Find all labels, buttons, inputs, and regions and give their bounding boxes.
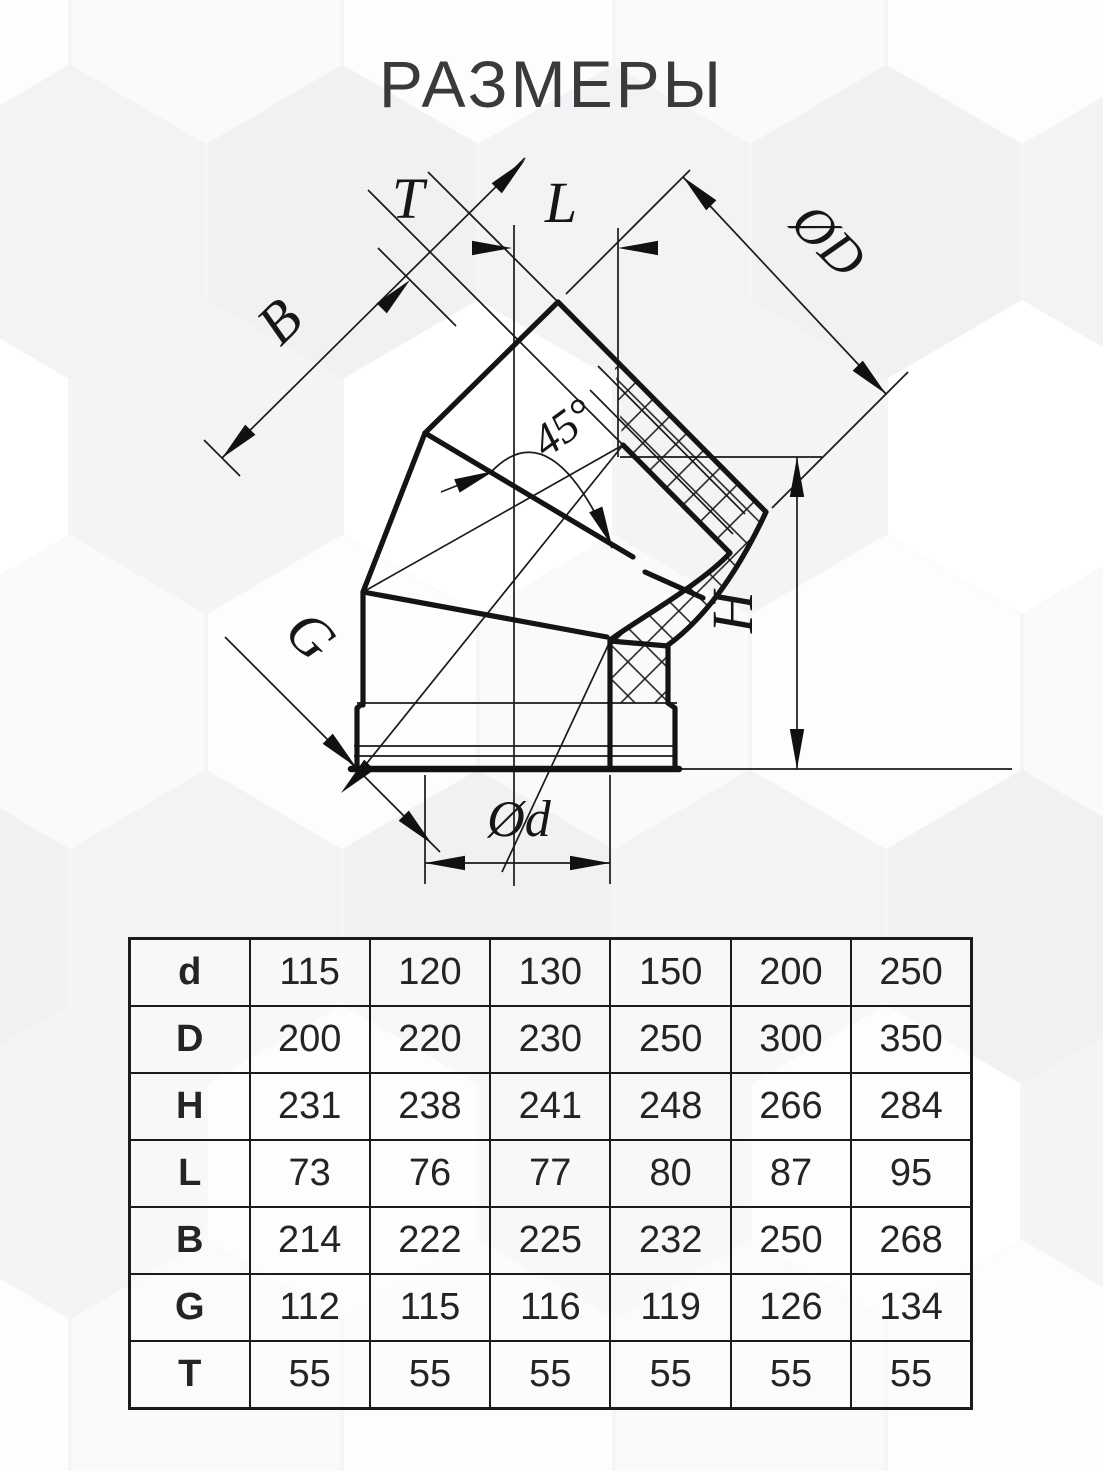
dimension-arrowhead — [377, 275, 415, 313]
table-row: d115120130150200250 — [130, 939, 972, 1007]
dimension-arrowhead — [678, 172, 716, 210]
dimensions-table-body: d115120130150200250D200220230250300350H2… — [130, 939, 972, 1409]
page-title: РАЗМЕРЫ — [0, 46, 1103, 122]
dim-label-t: T — [392, 166, 428, 231]
param-cell: T — [130, 1341, 250, 1409]
dim-label-g: G — [273, 597, 349, 673]
dim-label-h: H — [700, 588, 765, 634]
value-cell: 55 — [610, 1341, 730, 1409]
table-row: G112115116119126134 — [130, 1274, 972, 1341]
dimension-arrowhead — [853, 361, 891, 399]
table-row: H231238241248266284 — [130, 1073, 972, 1140]
value-cell: 250 — [731, 1207, 851, 1274]
dimension-arrowhead — [790, 729, 804, 769]
dimension-arrowhead — [399, 811, 437, 849]
dimension-arrowhead — [454, 464, 496, 492]
value-cell: 55 — [851, 1341, 971, 1409]
dimension-arrowhead — [492, 155, 530, 193]
value-cell: 300 — [731, 1006, 851, 1073]
value-cell: 220 — [370, 1006, 490, 1073]
value-cell: 130 — [490, 939, 610, 1007]
value-cell: 200 — [731, 939, 851, 1007]
value-cell: 268 — [851, 1207, 971, 1274]
dimensions-table: d115120130150200250D200220230250300350H2… — [128, 937, 973, 1410]
value-cell: 116 — [490, 1274, 610, 1341]
param-cell: L — [130, 1140, 250, 1207]
param-cell: d — [130, 939, 250, 1007]
value-cell: 55 — [250, 1341, 370, 1409]
value-cell: 77 — [490, 1140, 610, 1207]
value-cell: 119 — [610, 1274, 730, 1341]
param-cell: B — [130, 1207, 250, 1274]
value-cell: 134 — [851, 1274, 971, 1341]
value-cell: 80 — [610, 1140, 730, 1207]
value-cell: 150 — [610, 939, 730, 1007]
dimension-arrowhead — [472, 241, 512, 255]
value-cell: 76 — [370, 1140, 490, 1207]
param-cell: D — [130, 1006, 250, 1073]
value-cell: 222 — [370, 1207, 490, 1274]
value-cell: 248 — [610, 1073, 730, 1140]
value-cell: 284 — [851, 1073, 971, 1140]
table-row: B214222225232250268 — [130, 1207, 972, 1274]
param-cell: G — [130, 1274, 250, 1341]
dim-label-b: B — [244, 286, 315, 357]
value-cell: 214 — [250, 1207, 370, 1274]
table-row: L737677808795 — [130, 1140, 972, 1207]
value-cell: 55 — [731, 1341, 851, 1409]
value-cell: 200 — [250, 1006, 370, 1073]
param-cell: H — [130, 1073, 250, 1140]
dim-label-l: L — [544, 170, 577, 235]
value-cell: 126 — [731, 1274, 851, 1341]
construction-lines — [204, 158, 1012, 886]
value-cell: 73 — [250, 1140, 370, 1207]
dim-label-angle: 45° — [522, 388, 604, 467]
value-cell: 225 — [490, 1207, 610, 1274]
value-cell: 350 — [851, 1006, 971, 1073]
value-cell: 120 — [370, 939, 490, 1007]
value-cell: 230 — [490, 1006, 610, 1073]
value-cell: 250 — [610, 1006, 730, 1073]
value-cell: 266 — [731, 1073, 851, 1140]
value-cell: 55 — [490, 1341, 610, 1409]
value-cell: 231 — [250, 1073, 370, 1140]
value-cell: 250 — [851, 939, 971, 1007]
dim-label-outer-diameter: ØD — [779, 191, 877, 289]
value-cell: 115 — [250, 939, 370, 1007]
dimension-arrowhead — [425, 856, 465, 870]
page-root: РАЗМЕРЫ — [0, 0, 1103, 1471]
value-cell: 241 — [490, 1073, 610, 1140]
dim-label-inner-diameter: Ød — [486, 791, 552, 848]
value-cell: 87 — [731, 1140, 851, 1207]
table-row: T555555555555 — [130, 1341, 972, 1409]
value-cell: 55 — [370, 1341, 490, 1409]
value-cell: 112 — [250, 1274, 370, 1341]
elbow-outline — [351, 302, 766, 769]
insulation-hatch — [610, 358, 766, 703]
value-cell: 115 — [370, 1274, 490, 1341]
dimension-arrowhead — [570, 856, 610, 870]
value-cell: 232 — [610, 1207, 730, 1274]
value-cell: 238 — [370, 1073, 490, 1140]
table-row: D200220230250300350 — [130, 1006, 972, 1073]
dimension-arrowhead — [618, 241, 658, 255]
value-cell: 95 — [851, 1140, 971, 1207]
dimension-arrowhead — [217, 425, 255, 463]
